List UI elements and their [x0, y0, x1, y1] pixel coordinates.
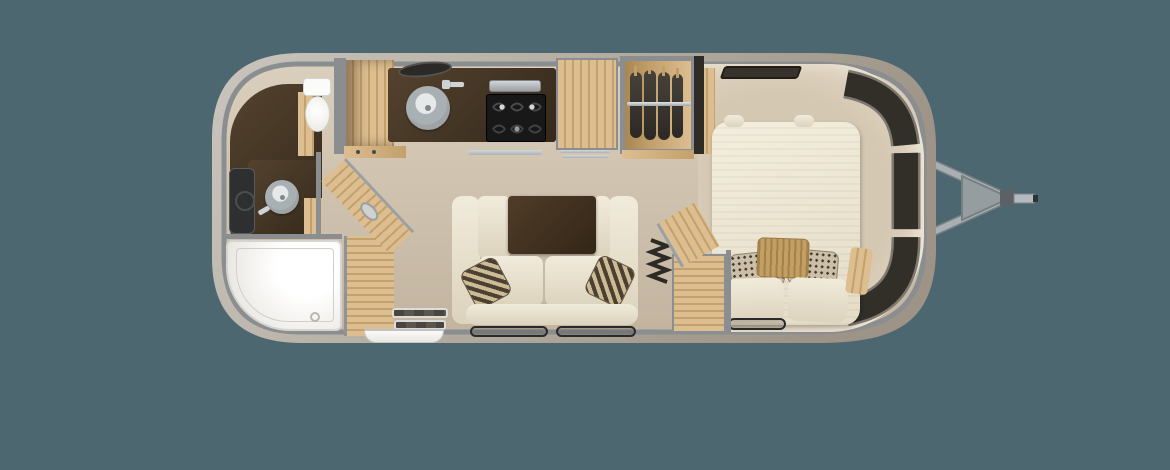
toilet-tank	[303, 78, 331, 96]
sofa-mat-right	[556, 326, 636, 337]
bed-pillow-cream-left	[725, 277, 785, 323]
wardrobe-side-panel	[694, 56, 704, 154]
wardrobe-base-strip	[622, 150, 694, 159]
bedroom-floor-mat	[728, 318, 786, 330]
floor-plan-stage	[0, 0, 1170, 470]
wall-vanity-side	[316, 152, 321, 236]
bed-pillow-cream-right	[787, 277, 848, 323]
cooktop	[486, 94, 546, 142]
door-hinge-left	[356, 150, 360, 154]
wardrobe-rod	[627, 102, 691, 106]
sofa-front-roll	[466, 304, 638, 325]
roof-vent	[720, 66, 803, 79]
wall-nightstand	[726, 250, 731, 333]
oven-handle	[468, 150, 542, 155]
kitchen-faucet-head	[442, 80, 450, 89]
upper-cabinet	[346, 60, 394, 146]
stove-tray	[489, 80, 541, 92]
sofa-back-right	[594, 196, 610, 258]
bed-pillow-accent	[756, 237, 809, 279]
kitchen-sink-drain	[425, 105, 431, 111]
garment-3	[658, 72, 670, 140]
bathroom-mirror-cabinet	[229, 168, 255, 234]
door-handle	[357, 199, 382, 224]
entry-step	[364, 329, 444, 343]
shower-fixture	[310, 312, 320, 322]
bathroom-sink-drain	[280, 195, 285, 200]
wall-bath-kitchen	[334, 58, 346, 154]
sofa-back-left	[478, 196, 510, 258]
entry-tread-top	[392, 308, 448, 318]
headboard-bump-right	[794, 115, 814, 127]
refrigerator	[556, 58, 618, 150]
wall-above-shower	[224, 234, 342, 239]
toilet-bowl	[305, 96, 330, 132]
garment-4	[672, 74, 683, 138]
fridge-handle-bottom	[562, 155, 608, 158]
door-hinge-right	[372, 150, 376, 154]
headboard-bump-left	[724, 115, 744, 127]
cooktop-grates	[487, 95, 547, 143]
ottoman-table	[508, 196, 596, 254]
sofa-mat-left	[470, 326, 548, 337]
fridge-handle-top	[560, 150, 610, 153]
accordion-divider	[648, 238, 670, 286]
